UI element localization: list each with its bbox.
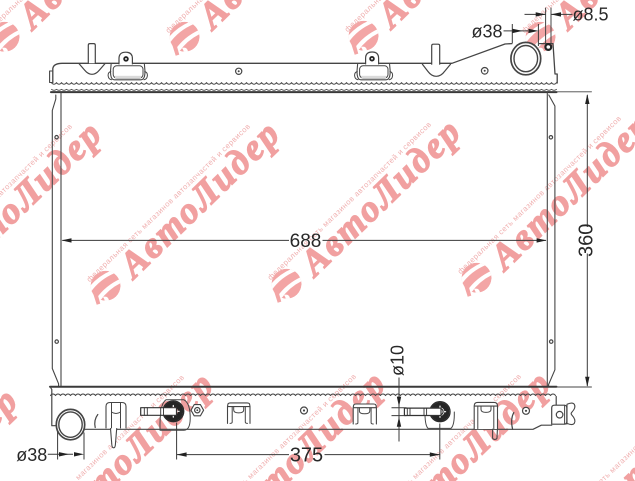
svg-text:ø10: ø10 <box>388 345 408 376</box>
svg-text:ø38: ø38 <box>16 445 47 465</box>
svg-text:ø8.5: ø8.5 <box>572 4 608 24</box>
svg-text:360: 360 <box>576 224 598 257</box>
svg-text:375: 375 <box>290 445 323 467</box>
svg-text:ø38: ø38 <box>471 21 502 41</box>
svg-text:688: 688 <box>290 231 322 252</box>
